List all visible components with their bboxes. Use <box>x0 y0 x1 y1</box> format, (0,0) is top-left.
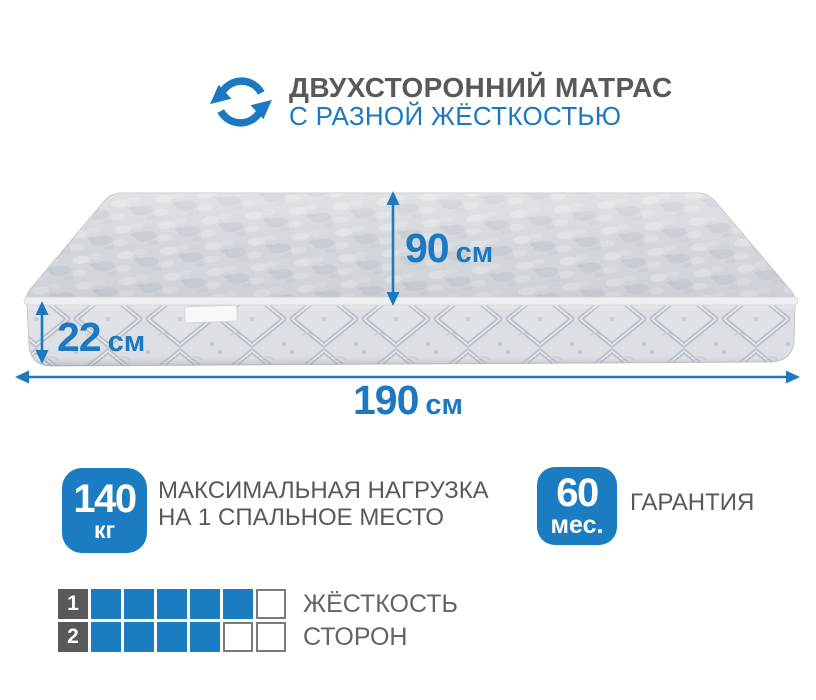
firmness-row-number: 1 <box>58 589 88 619</box>
width-dimension-label: 190см <box>0 380 816 421</box>
height-unit: см <box>108 326 146 358</box>
max-load-value: 140 <box>73 480 135 518</box>
firmness-row-number: 2 <box>58 622 88 652</box>
firmness-row-1: 1 <box>58 589 286 619</box>
firmness-cell-filled <box>223 589 253 619</box>
height-dimension-label: 22см <box>57 317 145 358</box>
mattress-label-tag <box>185 305 238 323</box>
width-unit: см <box>425 389 463 421</box>
max-load-badge: 140 кг <box>62 468 147 553</box>
width-value: 190 <box>353 377 418 423</box>
firmness-cell-filled <box>190 589 220 619</box>
firmness-cell-empty <box>256 589 286 619</box>
warranty-caption-line1: ГАРАНТИЯ <box>630 489 754 516</box>
mattress-piping-edge <box>24 297 798 305</box>
firmness-cell-filled <box>124 589 154 619</box>
max-load-caption: МАКСИМАЛЬНАЯ НАГРУЗКА НА 1 СПАЛЬНОЕ МЕСТ… <box>158 477 489 531</box>
depth-unit: см <box>456 237 494 269</box>
firmness-label-line1: ЖЁСТКОСТЬ <box>303 589 458 619</box>
warranty-value: 60 <box>556 474 598 512</box>
firmness-cell-filled <box>91 622 121 652</box>
depth-value: 90 <box>405 225 449 271</box>
max-load-caption-line2: НА 1 СПАЛЬНОЕ МЕСТО <box>158 504 489 531</box>
warranty-badge: 60 мес. <box>537 467 617 545</box>
warranty-caption: ГАРАНТИЯ <box>630 489 754 516</box>
max-load-unit: кг <box>94 519 115 542</box>
firmness-label-line2: СТОРОН <box>303 622 407 652</box>
firmness-cell-filled <box>91 589 121 619</box>
firmness-cell-filled <box>157 622 187 652</box>
firmness-cell-empty <box>256 622 286 652</box>
depth-dimension-label: 90см <box>405 228 493 269</box>
height-value: 22 <box>57 314 101 360</box>
firmness-cell-filled <box>124 622 154 652</box>
mattress-infographic: ДВУХСТОРОННИЙ МАТРАС С РАЗНОЙ ЖЁСТКОСТЬЮ <box>0 0 816 700</box>
firmness-cell-empty <box>223 622 253 652</box>
firmness-cell-filled <box>157 589 187 619</box>
firmness-cell-filled <box>190 622 220 652</box>
warranty-unit: мес. <box>551 513 604 538</box>
firmness-row-2: 2 <box>58 622 286 652</box>
max-load-caption-line1: МАКСИМАЛЬНАЯ НАГРУЗКА <box>158 477 489 504</box>
